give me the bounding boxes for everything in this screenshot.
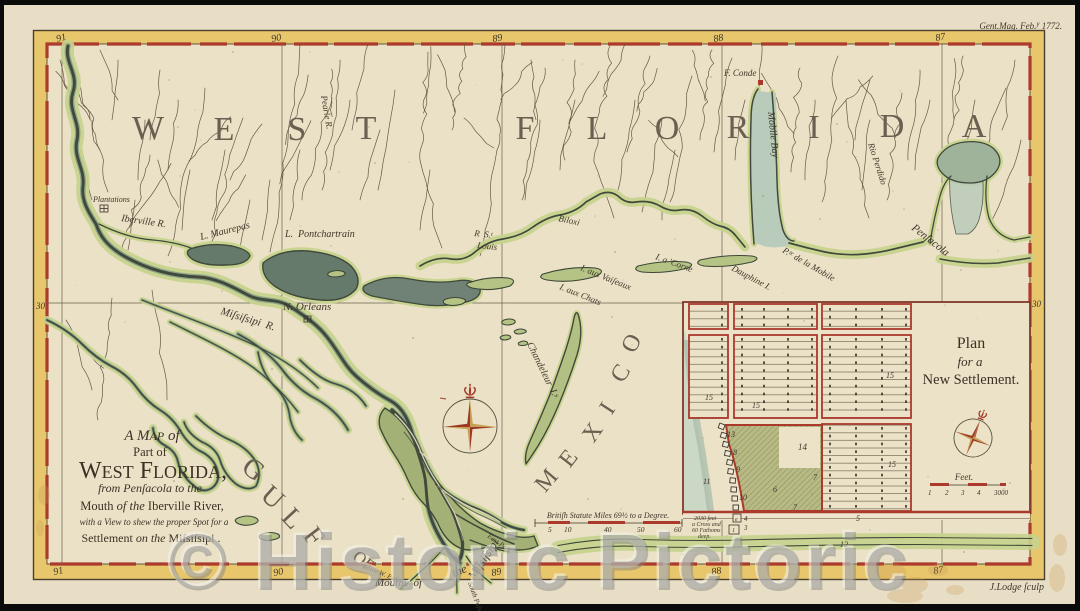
- svg-text:L. Pontchartrain: L. Pontchartrain: [284, 229, 355, 240]
- svg-text:E: E: [214, 111, 235, 148]
- svg-text:11: 11: [703, 477, 710, 486]
- svg-text:F. Conde: F. Conde: [723, 68, 756, 78]
- svg-text:S: S: [288, 111, 307, 148]
- svg-text:2: 2: [945, 489, 949, 497]
- svg-text:Feet.: Feet.: [954, 472, 973, 482]
- svg-text:F: F: [516, 110, 535, 147]
- svg-text:Gent.Mag. Feb.y 1772.: Gent.Mag. Feb.y 1772.: [979, 20, 1062, 31]
- svg-text:13: 13: [727, 430, 735, 439]
- svg-text:14: 14: [798, 442, 808, 452]
- svg-text:A MAP of: A MAP of: [123, 428, 181, 444]
- svg-text:D: D: [880, 108, 905, 145]
- svg-text:89: 89: [492, 32, 504, 45]
- svg-text:Part of: Part of: [133, 445, 168, 459]
- svg-text:30: 30: [1031, 299, 1042, 309]
- svg-text:New Settlement.: New Settlement.: [923, 372, 1020, 388]
- svg-text:6: 6: [773, 485, 777, 494]
- svg-text:R S.t: R S.t: [473, 228, 494, 240]
- svg-text:O: O: [655, 110, 680, 147]
- svg-text:4: 4: [977, 489, 981, 497]
- svg-text:Mouth of the Iberville River,: Mouth of the Iberville River,: [80, 499, 224, 513]
- svg-text:for a: for a: [958, 354, 983, 369]
- svg-text:L: L: [587, 110, 608, 147]
- svg-text:T: T: [356, 110, 377, 147]
- svg-text:1: 1: [928, 489, 932, 497]
- svg-text:R: R: [727, 109, 750, 146]
- svg-text:30: 30: [35, 301, 46, 311]
- svg-text:15: 15: [705, 393, 713, 402]
- svg-text:N. Orleans: N. Orleans: [282, 301, 331, 313]
- svg-text:8: 8: [733, 448, 737, 457]
- svg-text:10: 10: [739, 493, 747, 502]
- svg-text:88: 88: [713, 32, 725, 45]
- svg-text:© Historic Pictoric: © Historic Pictoric: [169, 518, 911, 607]
- svg-text:I: I: [808, 109, 819, 146]
- svg-text:J.Lodge ſculp: J.Lodge ſculp: [990, 582, 1044, 593]
- svg-text:from Penſacola to the: from Penſacola to the: [98, 481, 203, 495]
- svg-text:15: 15: [752, 401, 760, 410]
- svg-text:15: 15: [888, 460, 896, 469]
- svg-text:3000: 3000: [993, 489, 1009, 497]
- svg-text:9: 9: [736, 465, 740, 474]
- svg-text:15: 15: [886, 371, 894, 380]
- svg-text:3: 3: [960, 489, 965, 497]
- svg-text:Plantations: Plantations: [92, 195, 130, 204]
- svg-text:W: W: [132, 110, 165, 147]
- svg-text:Plan: Plan: [957, 335, 985, 352]
- svg-text:A: A: [962, 108, 987, 145]
